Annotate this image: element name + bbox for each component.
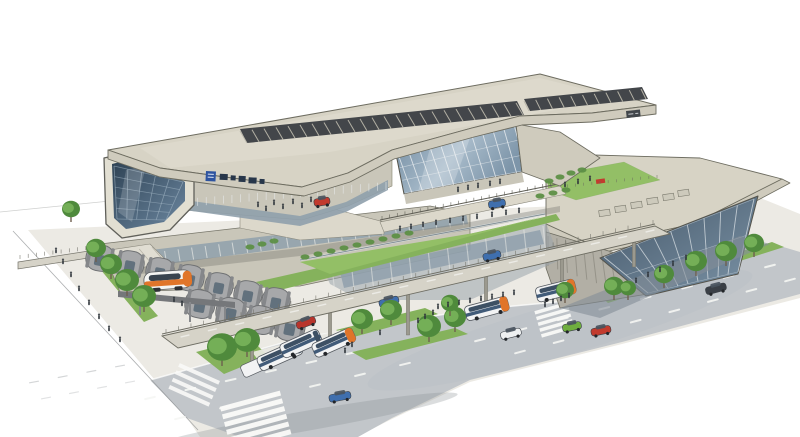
person bbox=[351, 342, 353, 348]
transit-hub-illustration bbox=[0, 0, 800, 437]
person bbox=[544, 302, 546, 308]
roof-vent bbox=[631, 201, 643, 208]
bush bbox=[562, 187, 571, 192]
person bbox=[432, 310, 434, 316]
sign-glyph bbox=[238, 176, 245, 182]
sketch-dash bbox=[42, 397, 51, 399]
bush bbox=[270, 238, 279, 243]
bush bbox=[246, 244, 255, 249]
person bbox=[88, 300, 90, 306]
person bbox=[462, 216, 464, 222]
person bbox=[422, 222, 424, 228]
sign-glyph bbox=[248, 177, 256, 183]
person bbox=[301, 203, 303, 209]
sketch-horizon-line bbox=[0, 201, 110, 212]
sketch-dash bbox=[98, 386, 107, 388]
person bbox=[257, 202, 259, 208]
bush bbox=[353, 242, 362, 247]
person bbox=[552, 299, 554, 305]
person bbox=[119, 337, 121, 343]
person bbox=[447, 302, 449, 308]
person bbox=[424, 314, 426, 320]
person bbox=[78, 286, 80, 292]
person bbox=[476, 214, 478, 220]
logo-icon bbox=[205, 171, 216, 182]
sign-glyph bbox=[220, 174, 228, 180]
person bbox=[659, 267, 661, 273]
person bbox=[469, 298, 471, 304]
person bbox=[518, 208, 520, 214]
person bbox=[417, 318, 419, 324]
person bbox=[491, 212, 493, 218]
person bbox=[435, 220, 437, 226]
person bbox=[379, 330, 381, 336]
bush bbox=[258, 241, 267, 246]
person bbox=[560, 296, 562, 302]
person bbox=[310, 197, 312, 203]
lane-dash bbox=[175, 417, 185, 419]
tree bbox=[62, 201, 80, 222]
bush bbox=[327, 248, 336, 253]
bush bbox=[340, 245, 349, 250]
person bbox=[173, 297, 175, 303]
person bbox=[647, 272, 649, 278]
person bbox=[273, 200, 275, 206]
person bbox=[55, 248, 57, 254]
person bbox=[564, 182, 566, 188]
bush bbox=[556, 174, 565, 179]
person bbox=[513, 290, 515, 296]
person bbox=[502, 292, 504, 298]
person bbox=[62, 259, 64, 265]
person bbox=[499, 179, 501, 185]
person bbox=[491, 294, 493, 300]
bush bbox=[549, 190, 558, 195]
sketch-fade-marks bbox=[30, 365, 135, 399]
sketch-dash bbox=[58, 376, 67, 378]
person bbox=[292, 199, 294, 205]
person bbox=[70, 272, 72, 278]
roof-vent bbox=[599, 209, 611, 216]
person bbox=[505, 210, 507, 216]
person bbox=[672, 261, 674, 267]
bush bbox=[366, 239, 375, 244]
person bbox=[577, 179, 579, 185]
person bbox=[399, 226, 401, 232]
sketch-dash bbox=[116, 365, 125, 367]
illustration-stage bbox=[0, 0, 800, 437]
roof-vent bbox=[615, 205, 627, 212]
person bbox=[344, 348, 346, 354]
sketch-dash bbox=[87, 371, 96, 373]
person bbox=[457, 187, 459, 193]
person bbox=[635, 278, 637, 284]
person bbox=[489, 181, 491, 187]
sketch-dash bbox=[70, 392, 79, 394]
bush bbox=[314, 251, 323, 256]
person bbox=[477, 183, 479, 189]
sketch-dash bbox=[126, 381, 135, 383]
bush bbox=[578, 167, 587, 172]
person bbox=[589, 176, 591, 182]
roof-vent bbox=[647, 197, 659, 204]
person bbox=[265, 206, 267, 212]
roof-vent bbox=[663, 193, 675, 200]
lane-dash bbox=[145, 397, 155, 399]
person bbox=[449, 218, 451, 224]
person bbox=[685, 255, 687, 261]
bush bbox=[301, 254, 310, 259]
person bbox=[480, 296, 482, 302]
bush bbox=[545, 178, 554, 183]
person bbox=[108, 326, 110, 332]
person bbox=[467, 185, 469, 191]
person bbox=[410, 224, 412, 230]
person bbox=[282, 204, 284, 210]
bush bbox=[379, 236, 388, 241]
roof-vent bbox=[678, 189, 690, 196]
roof-tip-sign bbox=[626, 110, 641, 118]
person bbox=[568, 293, 570, 299]
bush bbox=[405, 230, 414, 235]
sketch-dash bbox=[30, 381, 39, 383]
person bbox=[437, 304, 439, 310]
bush bbox=[536, 193, 545, 198]
bush bbox=[567, 170, 576, 175]
person bbox=[98, 314, 100, 320]
sign-glyph bbox=[259, 179, 264, 184]
sign-glyph bbox=[231, 175, 236, 180]
bush bbox=[392, 233, 401, 238]
person bbox=[458, 300, 460, 306]
person bbox=[181, 301, 183, 307]
